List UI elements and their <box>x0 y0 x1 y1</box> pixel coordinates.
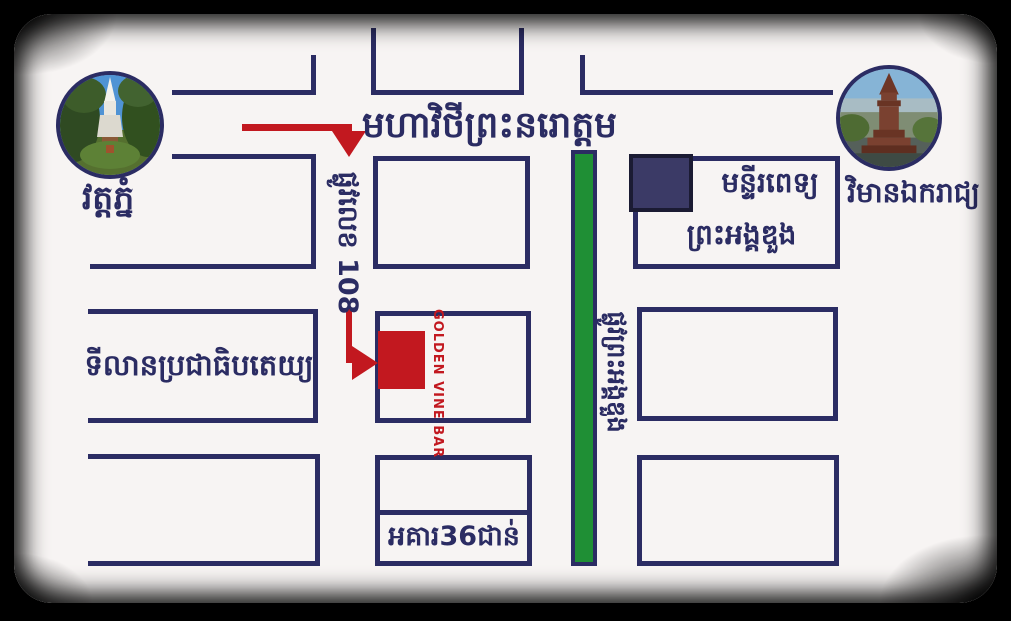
city-block <box>637 307 838 421</box>
street-108-label: ផ្លូវលេខ 108 <box>327 148 367 338</box>
independence-monument-illustration <box>840 69 938 167</box>
wat-phnom-label: វត្តភ្នំ <box>38 176 178 220</box>
block-edge <box>519 28 524 95</box>
building-36-label: អគារ36ជាន់ <box>378 514 530 560</box>
golden-vine-bar-marker <box>378 331 425 389</box>
city-block <box>373 156 530 269</box>
block-edge <box>90 264 316 269</box>
hospital-label-line2: ព្រះអង្គឌួង <box>638 210 845 260</box>
green-street-strip <box>571 150 597 566</box>
independence-monument-photo <box>836 65 942 171</box>
block-edge <box>172 154 316 159</box>
block-edge <box>580 55 585 95</box>
independence-monument-label: វិមានឯករាជ្យ <box>826 172 1001 214</box>
wat-phnom-illustration <box>60 75 160 175</box>
city-block <box>637 455 839 566</box>
block-edge <box>88 309 318 314</box>
map-card: វត្តភ្នំ វិមានឯករាជ្យ មហាវិថីព <box>0 0 1011 621</box>
hospital-marker-square <box>629 154 693 212</box>
block-edge <box>88 418 318 423</box>
wat-phnom-photo <box>56 71 164 179</box>
block-edge <box>172 90 316 95</box>
block-edge <box>311 55 316 95</box>
golden-vine-bar-label: GOLDEN VINE BAR <box>426 309 448 419</box>
hospital-label-line1: មន្ទីរពេទ្យ <box>695 158 845 208</box>
block-edge <box>580 90 833 95</box>
direction-arrow-bar-head <box>352 346 378 380</box>
block-edge <box>371 28 376 95</box>
block-edge <box>371 90 524 95</box>
preah-ang-duong-street-label: ផ្លូវព្រះអង្គឌួង <box>597 277 635 467</box>
block-edge <box>311 154 316 269</box>
street-map: វត្តភ្នំ វិមានឯករាជ្យ មហាវិថីព <box>0 0 1011 621</box>
block-edge <box>315 454 320 566</box>
democracy-square-label: ទីលានប្រជាធិបតេយ្យ <box>80 334 318 396</box>
block-edge <box>88 561 320 566</box>
direction-arrow-top <box>242 124 352 131</box>
norodom-blvd-label: មហាវិថីព្រះនរោត្តម <box>352 98 627 154</box>
block-edge <box>88 454 320 459</box>
